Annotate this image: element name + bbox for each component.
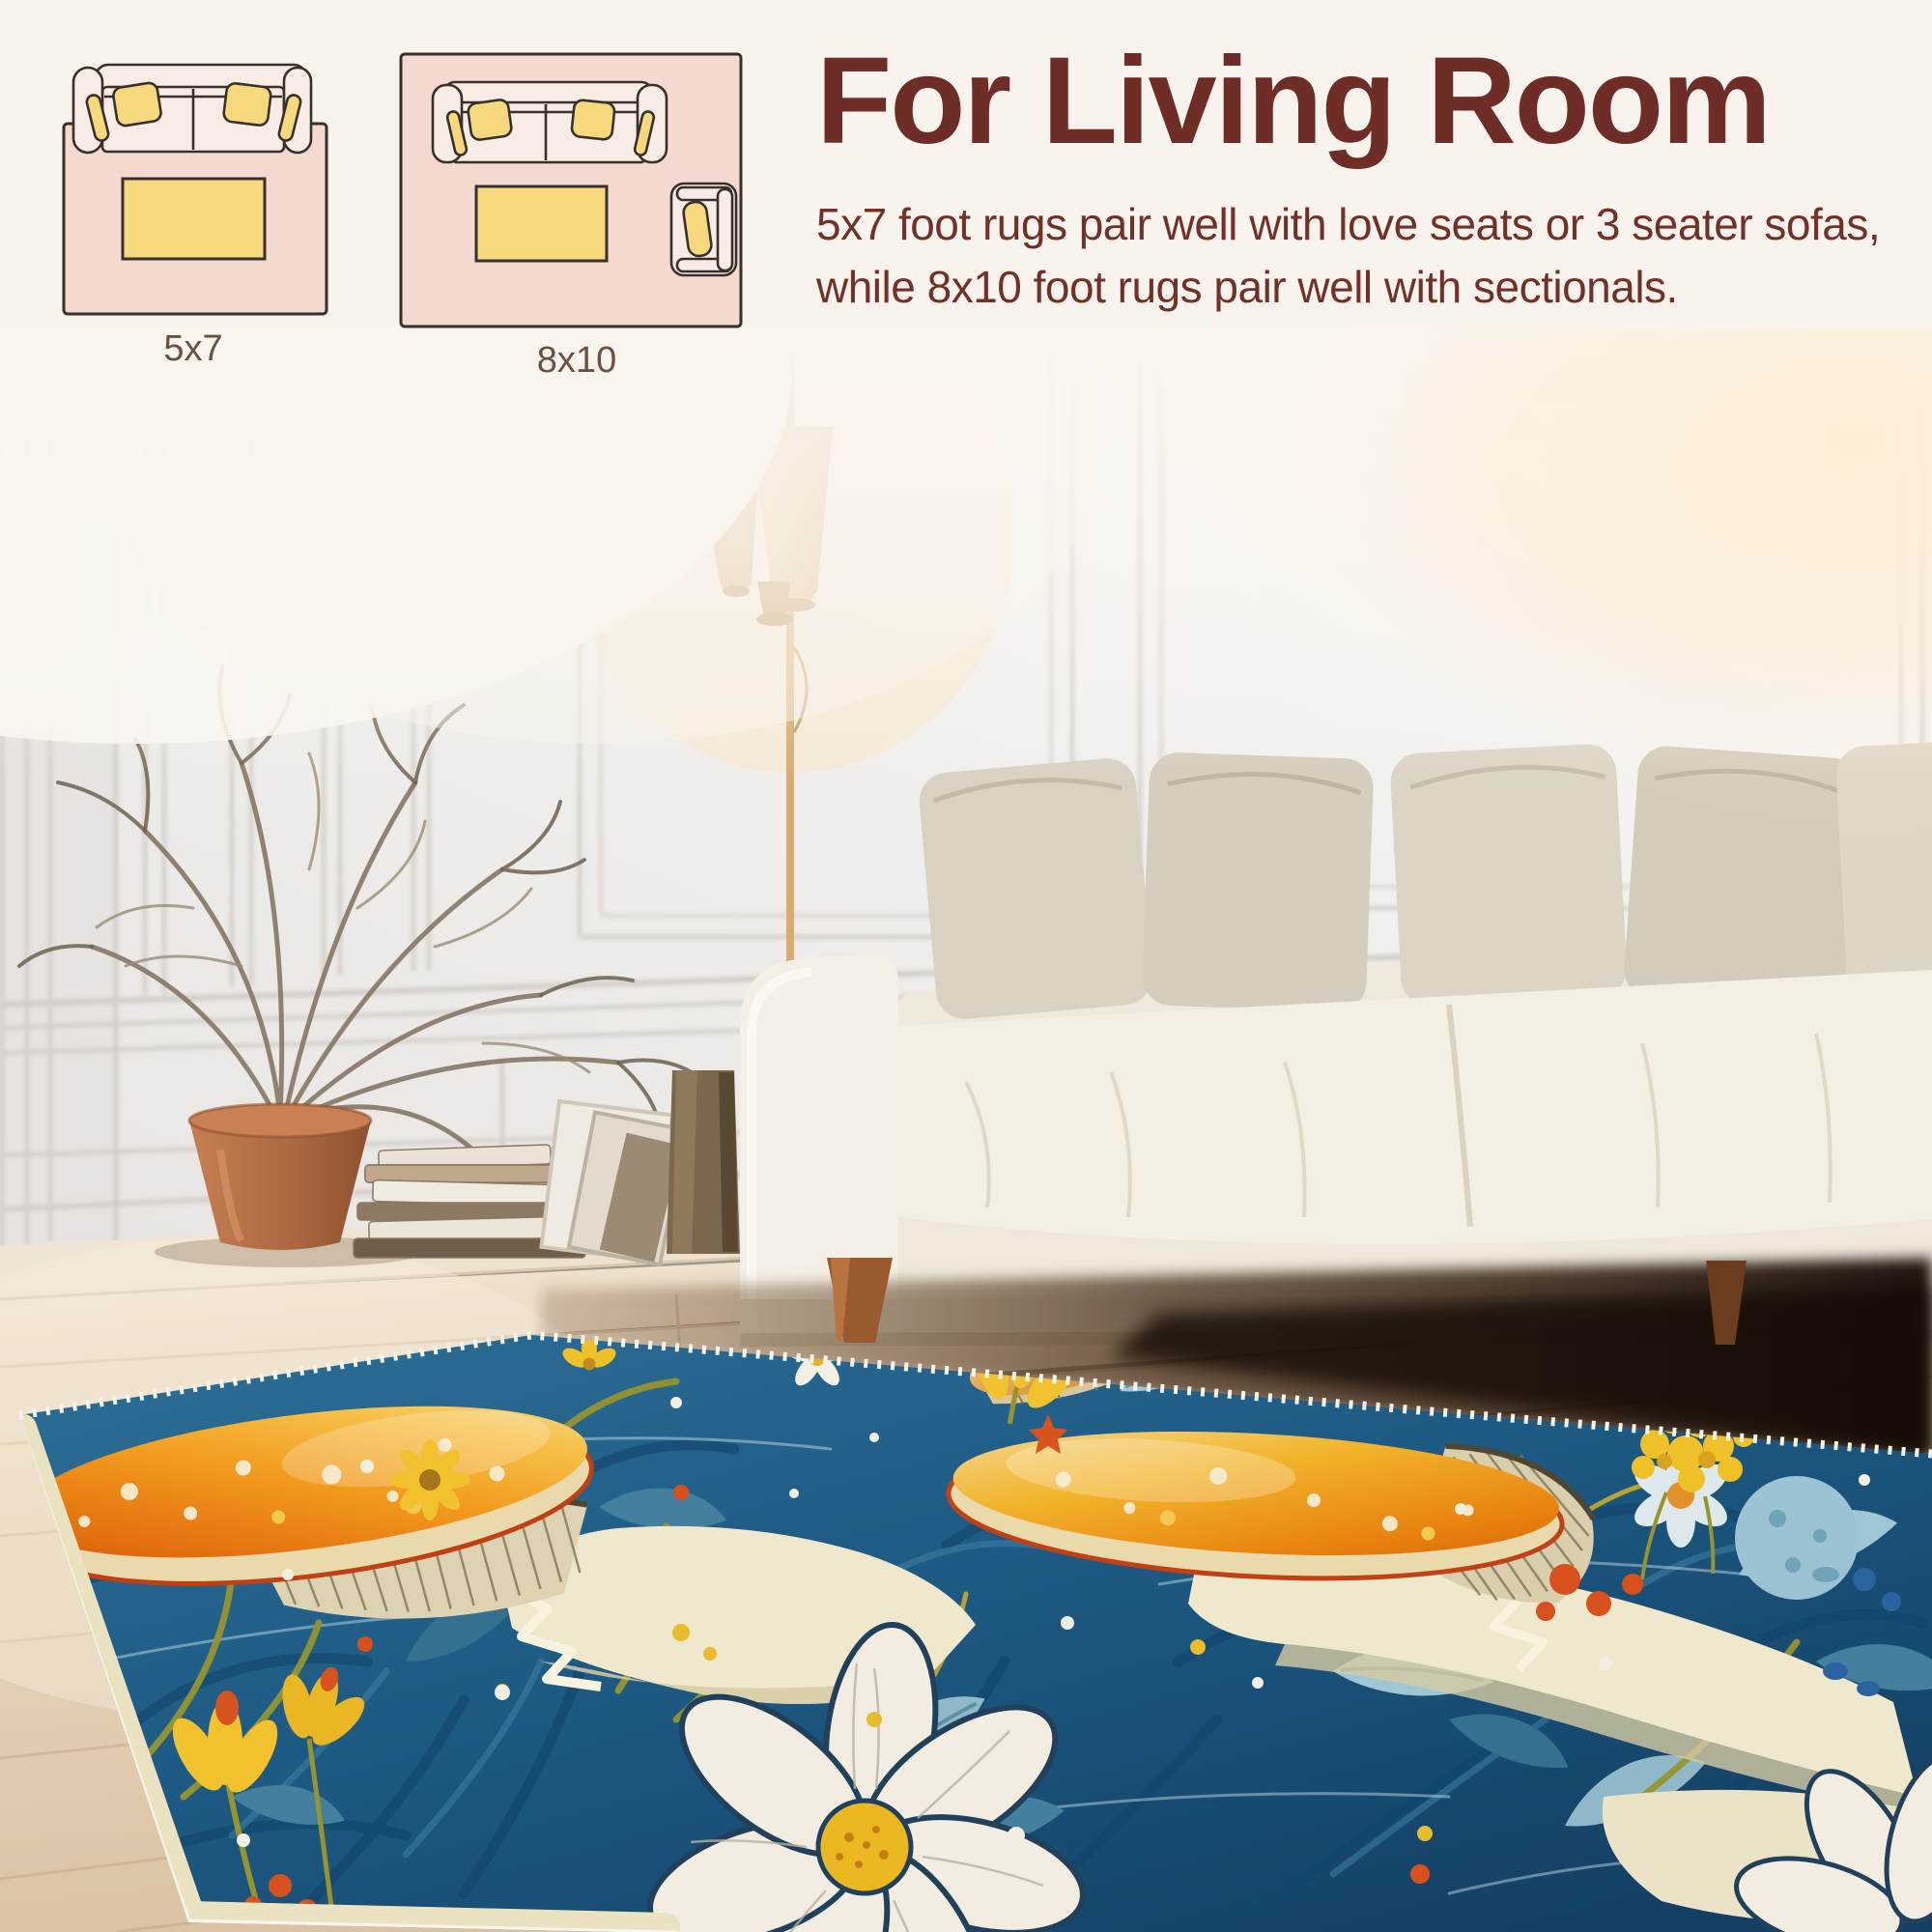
product-infographic: 5x7	[0, 0, 1932, 1932]
diagram-armchair	[671, 184, 736, 275]
decor-vase	[667, 1070, 740, 1254]
rug-size-diagram-5x7	[58, 39, 338, 328]
diagram-label-8x10: 8x10	[495, 340, 659, 382]
diagram-coffee-table	[123, 179, 265, 259]
living-room-scene	[0, 328, 1932, 1932]
diagram-label-5x7: 5x7	[111, 328, 275, 370]
living-room-photo	[0, 328, 1932, 1932]
leaning-frames	[541, 1101, 686, 1264]
diagram-sofa	[433, 82, 667, 162]
sofa-arm	[740, 954, 898, 1304]
diagram-coffee-table	[476, 186, 607, 261]
rug-size-diagram-8x10	[391, 43, 749, 342]
page-description: 5x7 foot rugs pair well with love seats …	[816, 193, 1903, 320]
page-title: For Living Room	[816, 37, 1927, 166]
diagram-sofa	[73, 65, 311, 153]
